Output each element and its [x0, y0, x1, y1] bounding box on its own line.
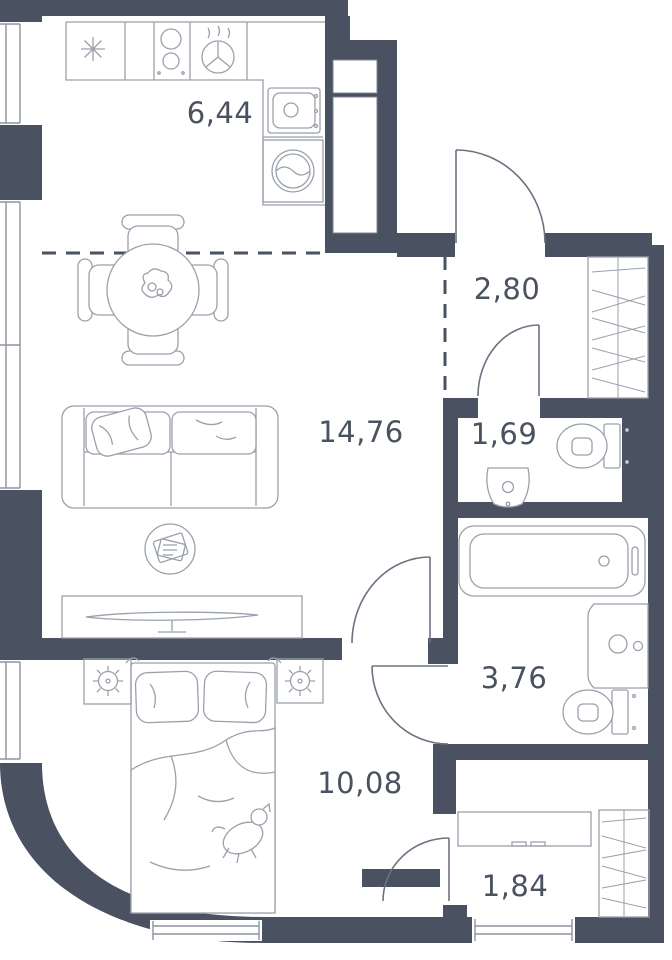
floor-plan-drawing: 6,44 14,76 2,80 1,69 3,76 10,08 1,84	[0, 0, 672, 960]
coffee-table	[145, 524, 195, 574]
sofa	[62, 406, 278, 508]
nightstand-right	[268, 658, 323, 703]
tv	[86, 612, 258, 620]
bathtub	[459, 526, 645, 596]
dishwasher-symbol	[81, 37, 105, 61]
wc-area-label: 1,69	[471, 417, 538, 451]
window-living	[0, 200, 42, 490]
wc-washbasin	[487, 468, 529, 507]
floor-plan: 6,44 14,76 2,80 1,69 3,76 10,08 1,84	[0, 0, 672, 960]
kitchen-sink	[268, 88, 320, 133]
shaft-niche	[333, 60, 377, 93]
entry-wardrobe	[599, 810, 649, 917]
wc-door	[478, 325, 539, 396]
bath-toilet	[563, 690, 636, 734]
washing-machine	[263, 140, 323, 202]
cooktop	[158, 29, 184, 74]
shaft-niche	[333, 97, 377, 233]
wc-toilet	[557, 424, 629, 468]
window-bottom-left	[150, 920, 262, 941]
double-bed	[131, 663, 275, 913]
bedroom-door	[372, 666, 448, 744]
extractor-hood	[202, 26, 234, 73]
window-kitchen	[0, 22, 42, 125]
hallway-wardrobe	[588, 257, 648, 398]
dining-set	[78, 215, 228, 365]
dining-table	[107, 244, 199, 336]
entry-door	[456, 150, 545, 243]
bath-washbasin	[588, 604, 648, 688]
tv-stand	[62, 596, 302, 638]
bedroom-area-label: 10,08	[317, 766, 403, 800]
bathroom-area-label: 3,76	[481, 661, 548, 695]
kitchen-area-label: 6,44	[187, 96, 254, 130]
window-bottom-right	[472, 917, 575, 943]
entry-hall-area-label: 1,84	[482, 869, 549, 903]
dresser	[458, 812, 591, 846]
nightstand-left	[84, 658, 139, 704]
living-area-label: 14,76	[318, 415, 404, 449]
hallway-area-label: 2,80	[474, 272, 541, 306]
window-bedroom	[0, 660, 42, 761]
bathroom-door	[352, 557, 430, 643]
